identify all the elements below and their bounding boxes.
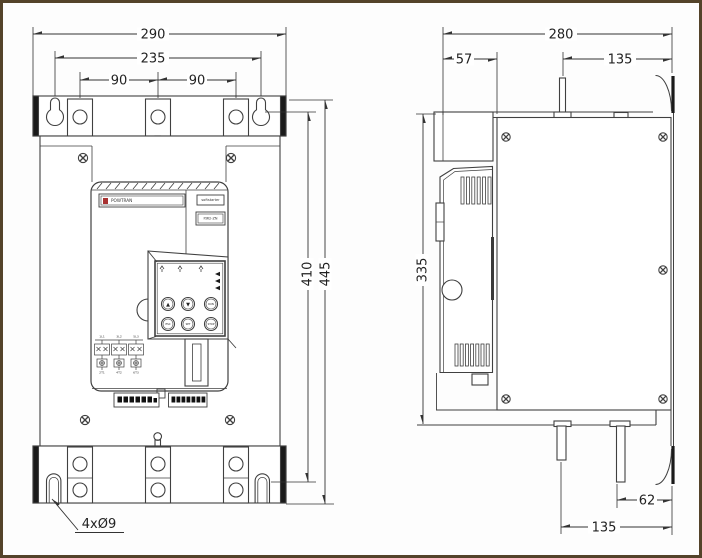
busbar	[617, 426, 626, 482]
svg-text:410: 410	[301, 262, 316, 287]
svg-text:90: 90	[189, 74, 206, 89]
wiring-input-label: 5L3	[133, 335, 139, 339]
screw-icon	[659, 133, 667, 141]
svg-text:135: 135	[608, 53, 633, 68]
dim-side-body-height: 335	[416, 114, 431, 424]
terminal-tab	[68, 447, 93, 503]
screw-icon	[225, 415, 234, 424]
model-label: PJR2-ZN	[203, 217, 217, 221]
wiring-input-label: 3L2	[116, 335, 122, 339]
dim-front-overall-width: 290	[33, 28, 286, 43]
svg-text:SET: SET	[186, 322, 191, 326]
svg-text:335: 335	[416, 258, 431, 283]
svg-text:62: 62	[639, 494, 656, 509]
bracket-edge	[33, 446, 39, 503]
bottom-mounting-bracket	[33, 446, 286, 503]
screw-icon	[502, 133, 510, 141]
busbar	[557, 426, 566, 460]
bracket-edge	[281, 446, 287, 503]
dim-front-terminal-spacing-right: 90	[158, 74, 236, 89]
drawing-sheet: POWTRAN softstarter PJR2-ZN	[0, 0, 702, 558]
dim-front-hole-note: 4xØ9	[52, 499, 124, 533]
screw-icon	[226, 153, 235, 162]
dim-side-busbar-spacing: 62	[617, 494, 672, 509]
svg-text:57: 57	[456, 53, 473, 68]
bracket-edge	[33, 96, 39, 136]
thumb-notch	[442, 280, 462, 300]
terminal-tab	[68, 99, 93, 136]
screw-icon	[502, 395, 510, 403]
svg-text:90: 90	[111, 74, 128, 89]
dim-side-overall-depth: 280	[443, 28, 672, 43]
technical-drawing: POWTRAN softstarter PJR2-ZN	[3, 3, 699, 555]
dim-front-overall-height: 445	[319, 100, 334, 504]
screw-icon	[80, 415, 89, 424]
terminal-block	[172, 397, 206, 403]
svg-text:445: 445	[319, 262, 334, 287]
wiring-output-label: 2T1	[99, 371, 105, 375]
terminal-tab	[224, 99, 249, 136]
screw-icon	[78, 153, 87, 162]
front-view: POWTRAN softstarter PJR2-ZN	[33, 96, 286, 503]
slot-bar	[491, 237, 494, 300]
terminal-tab	[146, 447, 171, 503]
dim-side-front-depth: 57	[443, 53, 497, 68]
svg-text:135: 135	[592, 521, 617, 536]
screw-icon	[659, 266, 667, 274]
bottom-shelf	[417, 410, 656, 482]
terminal-tab	[224, 447, 249, 503]
wiring-input-label: 1L1	[99, 335, 105, 339]
dim-front-hole-height: 410	[301, 112, 316, 482]
side-view	[417, 76, 674, 485]
dim-side-bottom-busbar-offset: 135	[561, 521, 672, 536]
cover-tab	[472, 374, 488, 385]
svg-text:290: 290	[141, 28, 166, 43]
bracket-edge	[281, 96, 287, 136]
svg-text:▲: ▲	[166, 302, 170, 308]
wiring-output-label: 4T2	[116, 371, 122, 375]
terminal-tab	[146, 99, 171, 136]
svg-text:STOP: STOP	[208, 322, 215, 326]
brand-label: POWTRAN	[111, 198, 132, 203]
wiring-output-label: 6T3	[133, 371, 139, 375]
svg-text:▼: ▼	[186, 302, 190, 308]
product-label: softstarter	[201, 198, 220, 202]
svg-text:ESC: ESC	[165, 322, 170, 326]
svg-text:280: 280	[549, 28, 574, 43]
dim-front-terminal-spacing-left: 90	[80, 74, 158, 89]
dim-front-slot-spacing: 235	[55, 52, 261, 67]
brand-logo-icon	[103, 198, 108, 204]
svg-text:4xØ9: 4xØ9	[82, 517, 116, 532]
side-body-panel	[497, 118, 671, 411]
screw-icon	[659, 395, 667, 403]
side-front-cover	[436, 167, 494, 411]
svg-text:RUN: RUN	[208, 302, 214, 306]
dim-side-top-busbar-offset: 135	[563, 53, 672, 68]
svg-text:235: 235	[141, 52, 166, 67]
